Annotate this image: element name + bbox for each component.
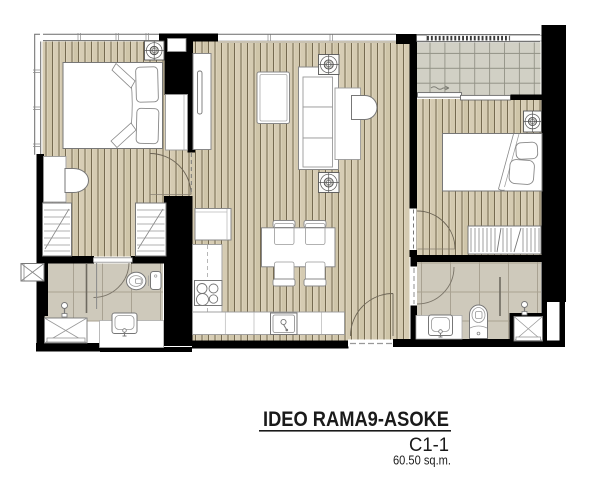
svg-text:IDEO RAMA9-ASOKE: IDEO RAMA9-ASOKE (263, 408, 449, 431)
svg-text:60.50 sq.m.: 60.50 sq.m. (393, 454, 451, 468)
